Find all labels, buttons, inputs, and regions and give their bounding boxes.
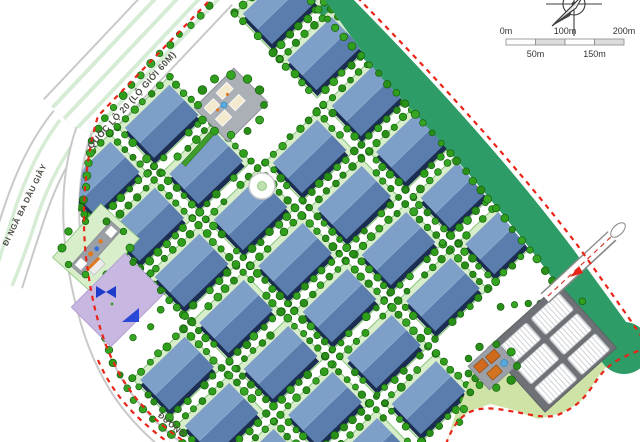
scale-tick-50: 50m	[527, 49, 545, 59]
scale-tick-100: 100m	[554, 26, 577, 36]
scale-bar: 0m 100m 200m 50m 150m	[500, 26, 636, 59]
scale-tick-200: 200m	[613, 26, 636, 36]
scale-tick-150: 150m	[583, 49, 606, 59]
site-plan-map: QUỐC LỘ 20 (LỘ GIỚI 60M) ĐI NGÃ BA DẦU G…	[0, 0, 640, 442]
site-plan-page: QUỐC LỘ 20 (LỘ GIỚI 60M) ĐI NGÃ BA DẦU G…	[0, 0, 640, 442]
scale-tick-0: 0m	[500, 26, 513, 36]
